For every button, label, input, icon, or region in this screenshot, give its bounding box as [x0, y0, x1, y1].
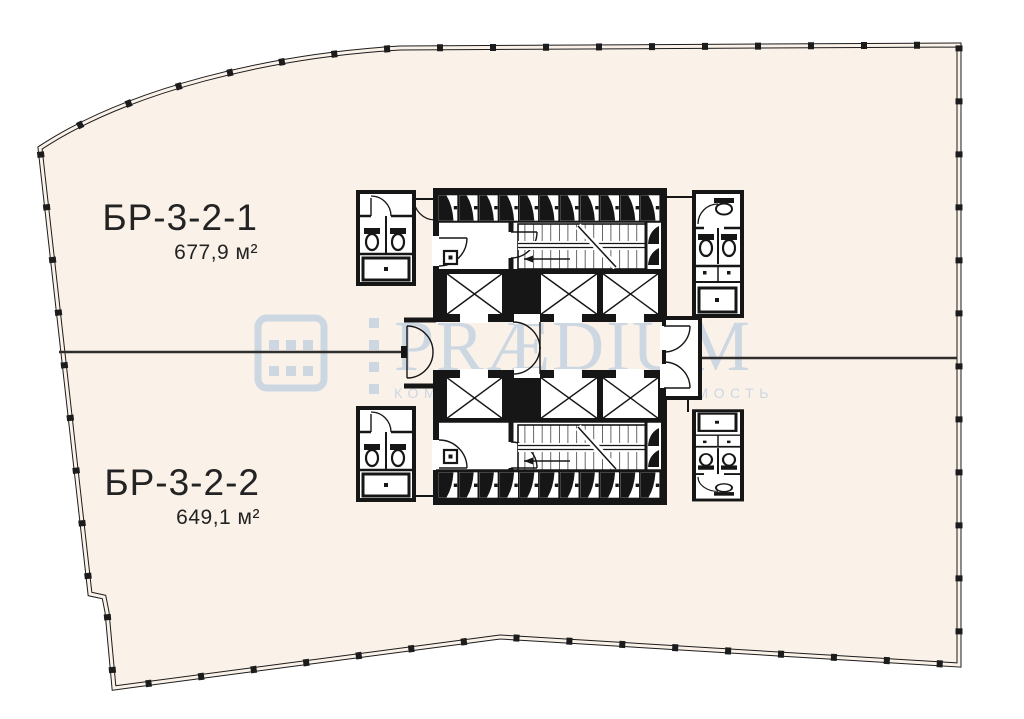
staircase-bottom-icon — [518, 425, 646, 471]
restroom-pod-bottom-left — [358, 408, 414, 500]
unit-2-name: БР-3-2-2 — [58, 464, 260, 503]
unit-1-name: БР-3-2-1 — [60, 199, 258, 238]
restroom-pod-top-right — [694, 192, 742, 316]
floorplan-canvas: PRÆDIUM КОММЕРЧЕСКАЯ НЕДВИЖИМОСТЬ — [0, 0, 1024, 719]
plan-linework — [0, 0, 1024, 719]
core-bottom — [432, 347, 664, 502]
restroom-pod-bottom-right — [694, 411, 742, 500]
unit-label-2: БР-3-2-2 649,1 м² — [58, 464, 260, 530]
elevator-bank-top — [436, 269, 664, 323]
elevator-shaft-icon — [446, 273, 503, 315]
elevator-shaft-icon — [540, 377, 598, 419]
lobby-entry-left — [404, 320, 436, 386]
elevator-shaft-icon — [602, 377, 659, 419]
core-top — [432, 191, 664, 349]
vent-shaft-row-bottom — [438, 472, 660, 499]
unit-label-1: БР-3-2-1 677,9 м² — [60, 199, 258, 265]
restroom-pod-top-left — [358, 192, 414, 284]
unit-2-area: 649,1 м² — [58, 506, 260, 530]
unit-1-area: 677,9 м² — [60, 241, 258, 265]
vestibule-right — [660, 318, 700, 398]
elevator-shaft-icon — [446, 377, 503, 419]
unit-divider-line — [59, 346, 957, 358]
elevator-shaft-icon — [540, 273, 598, 315]
elevator-bank-bottom — [436, 369, 664, 421]
elevator-shaft-icon — [602, 273, 659, 315]
vent-shaft-row-top — [438, 195, 660, 222]
staircase-top-icon — [518, 224, 646, 269]
